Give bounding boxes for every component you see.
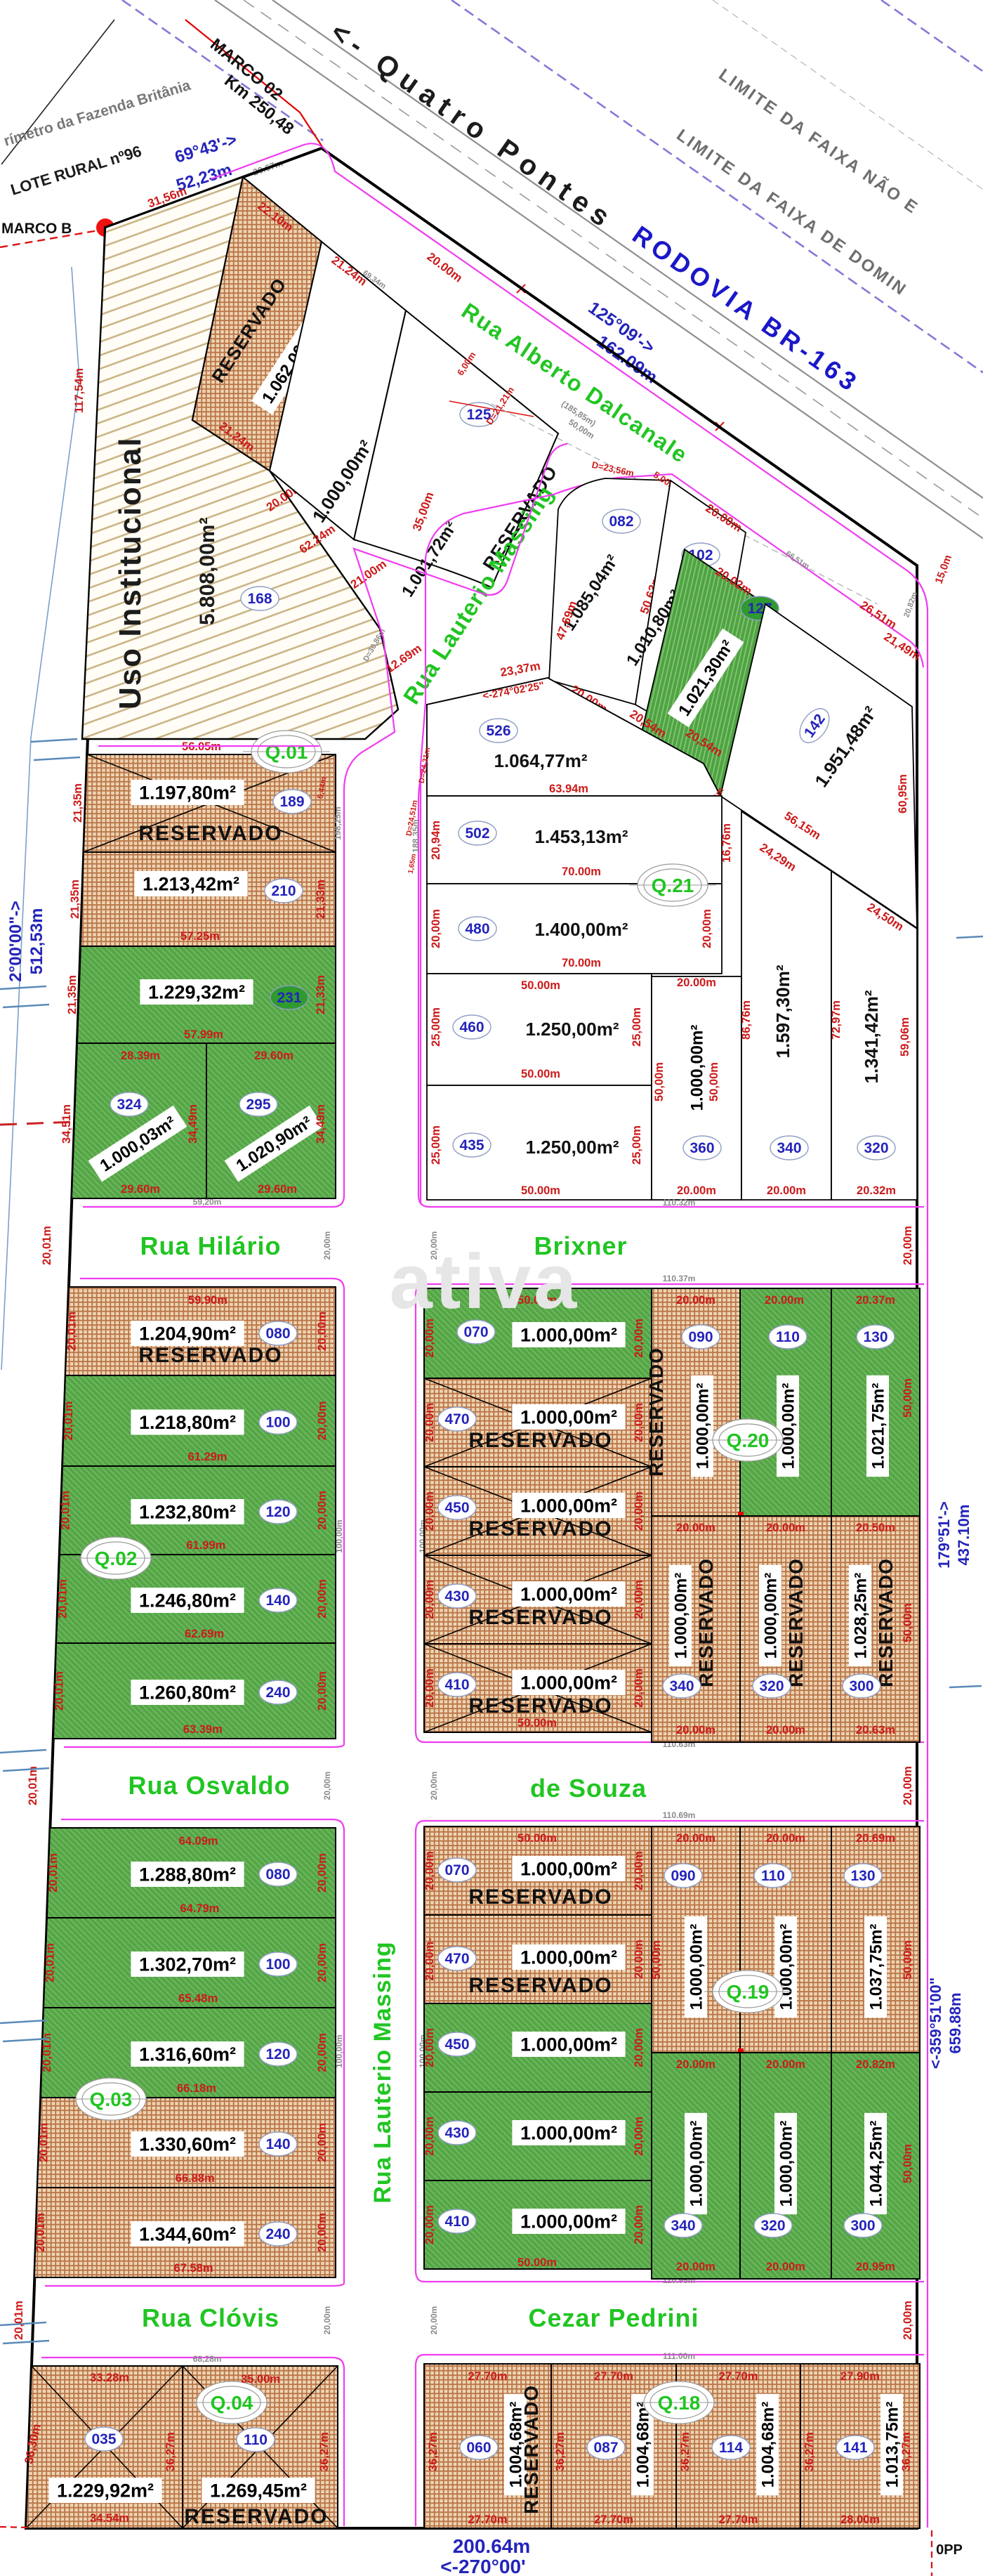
svg-text:1.000,00m²: 1.000,00m²: [761, 1573, 780, 1659]
svg-text:1.000,00m²: 1.000,00m²: [687, 1025, 706, 1111]
svg-text:33.28m: 33.28m: [90, 2372, 129, 2384]
svg-text:110.69m: 110.69m: [663, 1810, 696, 1820]
svg-text:512,53m: 512,53m: [27, 908, 46, 975]
svg-text:110: 110: [244, 2432, 268, 2448]
svg-text:1.269,45m²: 1.269,45m²: [210, 2480, 307, 2501]
svg-text:Rua Hilário: Rua Hilário: [140, 1231, 281, 1260]
svg-text:324: 324: [117, 1097, 141, 1113]
svg-text:140: 140: [265, 2136, 290, 2152]
svg-text:1.000,00m²: 1.000,00m²: [520, 1858, 617, 1879]
svg-text:188,35m: 188,35m: [411, 819, 421, 852]
svg-text:141: 141: [843, 2440, 867, 2456]
svg-text:20.32m: 20.32m: [857, 1184, 896, 1197]
svg-text:120: 120: [265, 2046, 290, 2062]
svg-text:20.00m: 20.00m: [766, 1832, 805, 1845]
svg-text:080: 080: [265, 1326, 290, 1342]
svg-text:070: 070: [444, 1862, 469, 1878]
svg-text:20,01m: 20,01m: [65, 1312, 78, 1351]
svg-text:5.808,00m²: 5.808,00m²: [196, 518, 219, 625]
svg-text:50,00m: 50,00m: [902, 2144, 914, 2183]
svg-text:20.00m: 20.00m: [766, 1724, 805, 1737]
svg-text:1.453,13m²: 1.453,13m²: [535, 826, 628, 847]
svg-text:20,00m: 20,00m: [430, 909, 442, 948]
svg-text:<-270°00': <-270°00': [440, 2556, 525, 2576]
svg-text:1.246,80m²: 1.246,80m²: [139, 1590, 236, 1611]
svg-text:36,27m: 36,27m: [900, 2432, 913, 2471]
svg-text:20.00m: 20.00m: [676, 2261, 715, 2273]
svg-text:100,00m: 100,00m: [334, 1519, 344, 1552]
svg-text:20.00m: 20.00m: [766, 2261, 805, 2273]
svg-text:21,33m: 21,33m: [315, 880, 327, 919]
svg-text:1.000,00m²: 1.000,00m²: [671, 1573, 690, 1659]
svg-text:140: 140: [265, 1593, 290, 1609]
svg-text:470: 470: [444, 1951, 469, 1967]
svg-text:70.00m: 70.00m: [562, 957, 601, 969]
svg-text:1.000,00m²: 1.000,00m²: [687, 2121, 706, 2207]
svg-text:20,01m: 20,01m: [27, 1766, 39, 1805]
svg-text:035: 035: [91, 2431, 116, 2447]
svg-text:435: 435: [459, 1137, 484, 1153]
svg-text:20.37m: 20.37m: [856, 1294, 895, 1307]
svg-text:50.00m: 50.00m: [521, 1184, 560, 1197]
svg-text:60,95m: 60,95m: [897, 774, 909, 813]
svg-text:59,06m: 59,06m: [899, 1017, 911, 1057]
svg-text:20,01m: 20,01m: [62, 1401, 75, 1441]
svg-text:210: 210: [271, 883, 296, 899]
svg-text:50,00m: 50,00m: [650, 1940, 663, 1980]
svg-text:1.344,60m²: 1.344,60m²: [139, 2223, 236, 2244]
svg-text:300: 300: [850, 2218, 875, 2234]
svg-text:20,00m: 20,00m: [633, 1403, 645, 1442]
svg-text:100: 100: [265, 1956, 290, 1973]
svg-text:1.000,00m²: 1.000,00m²: [520, 2122, 617, 2143]
svg-text:340: 340: [671, 2218, 695, 2234]
svg-text:1.044,25m²: 1.044,25m²: [866, 2121, 885, 2207]
svg-text:1.021,75m²: 1.021,75m²: [869, 1383, 888, 1470]
svg-text:1.341,42m²: 1.341,42m²: [861, 990, 882, 1083]
svg-text:2°00'00"->: 2°00'00"->: [6, 901, 25, 981]
svg-text:RESERVADO: RESERVADO: [138, 822, 282, 845]
svg-text:1.028,25m²: 1.028,25m²: [851, 1573, 870, 1659]
svg-text:59,20m: 59,20m: [193, 1197, 222, 1207]
svg-text:72,97m: 72,97m: [830, 1000, 843, 1040]
svg-text:1.000,00m²: 1.000,00m²: [520, 1672, 617, 1693]
svg-text:Uso Institucional: Uso Institucional: [113, 437, 147, 710]
svg-text:20,00m: 20,00m: [423, 2205, 436, 2244]
svg-text:21,35m: 21,35m: [66, 975, 79, 1014]
svg-text:1.000,00m²: 1.000,00m²: [520, 1947, 617, 1968]
svg-text:1.232,80m²: 1.232,80m²: [139, 1501, 236, 1522]
svg-text:27.70m: 27.70m: [468, 2513, 508, 2526]
svg-text:1.250,00m²: 1.250,00m²: [526, 1019, 619, 1040]
svg-text:36,27m: 36,27m: [554, 2432, 567, 2471]
svg-text:0PP: 0PP: [936, 2542, 963, 2558]
svg-text:1.229,92m²: 1.229,92m²: [57, 2480, 154, 2501]
svg-text:437.10m: 437.10m: [955, 1505, 972, 1566]
svg-text:198,25m: 198,25m: [333, 806, 343, 839]
svg-text:20.00m: 20.00m: [677, 976, 716, 989]
svg-text:20.00m: 20.00m: [766, 2058, 805, 2071]
svg-text:Rua Clóvis: Rua Clóvis: [142, 2303, 279, 2332]
svg-text:25,00m: 25,00m: [631, 1125, 643, 1165]
svg-text:20.00m: 20.00m: [676, 2058, 715, 2071]
svg-text:Q.01: Q.01: [265, 741, 308, 763]
svg-text:1.000,00m²: 1.000,00m²: [520, 1406, 617, 1427]
svg-text:1.316,60m²: 1.316,60m²: [139, 2044, 236, 2065]
svg-text:20,01m: 20,01m: [34, 2213, 47, 2252]
svg-text:1.213,42m²: 1.213,42m²: [143, 873, 239, 894]
svg-text:50.00m: 50.00m: [517, 2256, 557, 2269]
svg-text:RESERVADO: RESERVADO: [468, 1974, 612, 1997]
svg-text:25,00m: 25,00m: [631, 1007, 643, 1047]
svg-text:50,00m: 50,00m: [708, 1062, 720, 1101]
svg-text:66.88m: 66.88m: [176, 2172, 215, 2185]
svg-text:659.88m: 659.88m: [946, 1993, 964, 2054]
svg-text:1.204,90m²: 1.204,90m²: [139, 1323, 236, 1344]
svg-text:189: 189: [279, 794, 304, 810]
svg-text:1.197,80m²: 1.197,80m²: [139, 782, 236, 803]
svg-text:50.00m: 50.00m: [517, 1832, 557, 1845]
svg-text:130: 130: [850, 1868, 875, 1884]
svg-text:29.60m: 29.60m: [254, 1050, 293, 1062]
svg-text:34,49m: 34,49m: [187, 1104, 199, 1144]
svg-text:34,51m: 34,51m: [60, 1104, 73, 1144]
svg-text:Q.19: Q.19: [727, 1981, 770, 2003]
svg-text:Q.18: Q.18: [658, 2392, 701, 2414]
svg-text:240: 240: [265, 2226, 290, 2242]
svg-text:20,01m: 20,01m: [60, 1491, 72, 1530]
svg-text:RESERVADO: RESERVADO: [468, 1606, 612, 1629]
svg-text:Rua Lauterio Massing: Rua Lauterio Massing: [369, 1941, 396, 2203]
svg-text:20,01m: 20,01m: [47, 1853, 60, 1892]
svg-text:RESERVADO: RESERVADO: [468, 1429, 612, 1452]
svg-text:450: 450: [444, 2036, 469, 2053]
svg-text:34,49m: 34,49m: [315, 1104, 327, 1144]
svg-text:480: 480: [465, 921, 489, 937]
svg-text:1.013,75m²: 1.013,75m²: [883, 2402, 902, 2488]
svg-text:20,00m: 20,00m: [902, 2301, 914, 2340]
svg-text:231: 231: [277, 990, 301, 1006]
svg-text:20,00m: 20,00m: [316, 2213, 329, 2252]
svg-text:20,00m: 20,00m: [316, 1671, 329, 1711]
svg-text:RESERVADO: RESERVADO: [875, 1558, 897, 1687]
svg-text:320: 320: [759, 1678, 784, 1694]
svg-text:61.29m: 61.29m: [188, 1451, 227, 1463]
svg-text:RESERVADO: RESERVADO: [468, 1694, 612, 1718]
svg-text:20.00m: 20.00m: [676, 1832, 715, 1845]
svg-text:20,00m: 20,00m: [701, 909, 713, 948]
svg-text:20,00m: 20,00m: [633, 2117, 645, 2156]
svg-text:27.70m: 27.70m: [594, 2370, 633, 2383]
svg-text:20,00m: 20,00m: [429, 2306, 439, 2335]
svg-text:1.000,00m²: 1.000,00m²: [520, 1495, 617, 1516]
svg-text:1.064,77m²: 1.064,77m²: [494, 750, 588, 771]
svg-text:20,00m: 20,00m: [633, 1319, 645, 1358]
svg-text:de Souza: de Souza: [530, 1774, 647, 1803]
svg-text:RESERVADO: RESERVADO: [645, 1347, 667, 1477]
svg-text:1.000,00m²: 1.000,00m²: [520, 1324, 617, 1345]
svg-text:526: 526: [486, 723, 510, 739]
svg-text:20,00m: 20,00m: [316, 1943, 329, 1982]
svg-text:1.260,80m²: 1.260,80m²: [139, 1682, 236, 1703]
svg-text:470: 470: [444, 1411, 469, 1427]
svg-text:20,00m: 20,00m: [423, 1668, 436, 1708]
svg-text:Rua Osvaldo: Rua Osvaldo: [128, 1771, 290, 1800]
svg-text:Q.03: Q.03: [90, 2088, 133, 2110]
svg-text:1.330,60m²: 1.330,60m²: [139, 2133, 236, 2155]
svg-text:090: 090: [688, 1329, 713, 1345]
svg-text:1.037,75m²: 1.037,75m²: [866, 1924, 885, 2011]
svg-text:20.00m: 20.00m: [676, 1724, 715, 1737]
svg-text:20,00m: 20,00m: [316, 1312, 329, 1351]
svg-text:Q.04: Q.04: [211, 2392, 253, 2414]
svg-text:68,28m: 68,28m: [193, 2354, 222, 2364]
svg-text:1.288,80m²: 1.288,80m²: [139, 1864, 236, 1885]
svg-text:Q.20: Q.20: [727, 1430, 770, 1451]
svg-text:20,00m: 20,00m: [316, 1491, 329, 1530]
svg-text:50.00m: 50.00m: [521, 1068, 560, 1080]
svg-text:34.54m: 34.54m: [90, 2512, 129, 2525]
svg-text:090: 090: [671, 1868, 695, 1884]
svg-text:36,27m: 36,27m: [803, 2432, 816, 2471]
svg-text:430: 430: [444, 2125, 469, 2141]
svg-text:64.79m: 64.79m: [180, 1902, 219, 1915]
svg-text:RESERVADO: RESERVADO: [520, 2385, 542, 2514]
svg-text:1.302,70m²: 1.302,70m²: [139, 1954, 236, 1975]
svg-text:ativa: ativa: [390, 1238, 580, 1325]
svg-text:1.250,00m²: 1.250,00m²: [526, 1137, 619, 1158]
svg-text:20.00m: 20.00m: [676, 1294, 715, 1307]
svg-text:20,00m: 20,00m: [316, 2123, 329, 2162]
svg-text:100: 100: [265, 1415, 290, 1431]
svg-text:082: 082: [609, 514, 633, 530]
svg-text:RESERVADO: RESERVADO: [468, 1517, 612, 1541]
svg-text:111.00m: 111.00m: [663, 2351, 695, 2361]
svg-text:20.00m: 20.00m: [767, 1184, 806, 1197]
svg-text:20,00m: 20,00m: [633, 1940, 645, 1979]
svg-text:1.000,00m²: 1.000,00m²: [777, 2121, 796, 2207]
svg-text:20,01m: 20,01m: [13, 2301, 25, 2340]
svg-text:20,00m: 20,00m: [902, 1226, 914, 1265]
svg-text:<-359°51'00": <-359°51'00": [927, 1977, 944, 2069]
svg-text:36,27m: 36,27m: [679, 2432, 692, 2471]
svg-text:27.70m: 27.70m: [594, 2513, 633, 2526]
svg-text:50,00m: 50,00m: [653, 1062, 666, 1101]
svg-text:RESERVADO: RESERVADO: [785, 1558, 807, 1687]
svg-text:20,00m: 20,00m: [633, 1580, 645, 1619]
svg-text:20,00m: 20,00m: [316, 1401, 329, 1441]
svg-text:120: 120: [265, 1504, 290, 1520]
svg-text:20,00m: 20,00m: [423, 2117, 436, 2156]
svg-text:20,01m: 20,01m: [53, 1671, 66, 1711]
svg-text:20.82m: 20.82m: [856, 2058, 895, 2071]
svg-text:114: 114: [719, 2440, 743, 2456]
svg-text:29.60m: 29.60m: [258, 1183, 297, 1196]
svg-text:MARCO B: MARCO B: [1, 221, 72, 237]
svg-text:410: 410: [444, 2214, 469, 2230]
svg-text:20,00m: 20,00m: [633, 1491, 645, 1531]
svg-text:20,00m: 20,00m: [316, 2033, 329, 2072]
svg-text:20,00m: 20,00m: [902, 1766, 914, 1805]
svg-text:1.000,00m²: 1.000,00m²: [693, 1383, 712, 1470]
svg-text:35.00m: 35.00m: [241, 2373, 280, 2386]
svg-text:65.48m: 65.48m: [178, 1992, 218, 2005]
svg-text:320: 320: [864, 1140, 888, 1156]
svg-text:Cezar Pedrini: Cezar Pedrini: [528, 2303, 699, 2332]
svg-text:50.00m: 50.00m: [521, 979, 560, 992]
svg-text:27.90m: 27.90m: [840, 2370, 880, 2383]
svg-text:20,00m: 20,00m: [322, 1772, 332, 1800]
svg-text:20.00m: 20.00m: [766, 1522, 805, 1534]
svg-text:110: 110: [776, 1329, 800, 1345]
svg-text:295: 295: [246, 1097, 270, 1113]
svg-text:1.229,32m²: 1.229,32m²: [148, 981, 245, 1002]
svg-text:25,00m: 25,00m: [430, 1125, 442, 1165]
svg-text:57.99m: 57.99m: [184, 1028, 223, 1041]
svg-text:450: 450: [444, 1500, 469, 1516]
svg-text:27.70m: 27.70m: [719, 2513, 758, 2526]
svg-text:340: 340: [669, 1678, 694, 1694]
svg-text:25,00m: 25,00m: [430, 1007, 442, 1047]
svg-text:20,00m: 20,00m: [423, 2028, 436, 2067]
svg-text:110.32m: 110.32m: [663, 1198, 696, 1208]
svg-text:20,00m: 20,00m: [633, 2205, 645, 2244]
svg-text:70.00m: 70.00m: [562, 865, 601, 878]
svg-text:20.69m: 20.69m: [856, 1832, 895, 1845]
svg-text:20,00m: 20,00m: [423, 1403, 436, 1442]
svg-text:240: 240: [265, 1685, 290, 1701]
svg-text:200.64m: 200.64m: [453, 2535, 531, 2557]
svg-text:1.400,00m²: 1.400,00m²: [535, 919, 628, 940]
svg-text:320: 320: [760, 2218, 785, 2234]
svg-text:RESERVADO: RESERVADO: [468, 1885, 612, 1909]
svg-text:21,35m: 21,35m: [69, 880, 81, 919]
svg-text:20,00m: 20,00m: [322, 1231, 332, 1260]
svg-text:86,76m: 86,76m: [740, 1000, 753, 1040]
svg-text:67.58m: 67.58m: [174, 2262, 213, 2275]
svg-text:20,00m: 20,00m: [423, 1580, 436, 1619]
svg-text:20,01m: 20,01m: [37, 2123, 50, 2162]
svg-text:Q.02: Q.02: [95, 1548, 138, 1569]
svg-text:117,54m: 117,54m: [73, 368, 86, 413]
svg-text:20,00m: 20,00m: [633, 1851, 645, 1890]
svg-text:50,00m: 50,00m: [902, 1940, 914, 1980]
svg-text:360: 360: [690, 1140, 714, 1156]
svg-text:57.25m: 57.25m: [180, 930, 220, 943]
svg-text:36,27m: 36,27m: [318, 2432, 331, 2471]
svg-text:20,94m: 20,94m: [430, 820, 442, 860]
svg-text:1.218,80m²: 1.218,80m²: [139, 1412, 236, 1433]
svg-text:36,27m: 36,27m: [427, 2432, 440, 2471]
svg-text:63.94m: 63.94m: [549, 783, 588, 795]
svg-text:110: 110: [761, 1868, 785, 1884]
svg-text:20,00m: 20,00m: [423, 1851, 436, 1890]
svg-text:27.70m: 27.70m: [468, 2370, 508, 2383]
svg-text:20.00m: 20.00m: [677, 1184, 716, 1197]
svg-text:110.37m: 110.37m: [663, 1274, 696, 1283]
svg-text:060: 060: [466, 2440, 491, 2456]
svg-text:1.004,68m²: 1.004,68m²: [758, 2402, 777, 2488]
svg-text:20,01m: 20,01m: [41, 1226, 53, 1265]
svg-text:Q.21: Q.21: [652, 875, 694, 896]
svg-text:20,01m: 20,01m: [44, 1943, 56, 1982]
svg-text:20.95m: 20.95m: [856, 2261, 895, 2273]
svg-text:36,27m: 36,27m: [164, 2432, 177, 2471]
svg-text:27.70m: 27.70m: [719, 2370, 758, 2383]
svg-text:66.18m: 66.18m: [177, 2082, 216, 2095]
svg-text:50.00m: 50.00m: [517, 1717, 557, 1730]
svg-text:1.000,00m²: 1.000,00m²: [520, 1583, 617, 1604]
svg-text:50,00m: 50,00m: [902, 1603, 914, 1642]
svg-text:20,01m: 20,01m: [56, 1579, 69, 1619]
svg-text:62.69m: 62.69m: [185, 1628, 224, 1640]
svg-text:460: 460: [459, 1019, 484, 1035]
svg-text:20.63m: 20.63m: [856, 1724, 895, 1737]
svg-text:502: 502: [465, 825, 489, 842]
svg-text:16,76m: 16,76m: [720, 823, 733, 863]
svg-text:168: 168: [247, 591, 272, 607]
svg-text:1.000,00m²: 1.000,00m²: [687, 1924, 706, 2011]
svg-text:RESERVADO: RESERVADO: [138, 1344, 282, 1367]
svg-text:28.39m: 28.39m: [121, 1050, 160, 1062]
svg-text:20.50m: 20.50m: [856, 1522, 895, 1534]
svg-text:20,00m: 20,00m: [322, 2306, 332, 2335]
svg-text:410: 410: [444, 1677, 469, 1693]
svg-text:340: 340: [777, 1140, 801, 1156]
svg-text:080: 080: [265, 1866, 290, 1883]
svg-text:20.00m: 20.00m: [765, 1294, 804, 1307]
svg-text:300: 300: [849, 1678, 873, 1694]
svg-text:29.60m: 29.60m: [121, 1183, 160, 1196]
svg-text:RESERVADO: RESERVADO: [184, 2505, 328, 2528]
svg-text:20,00m: 20,00m: [429, 1772, 439, 1800]
svg-text:430: 430: [444, 1588, 469, 1604]
svg-text:20,00m-: 20,00m-: [423, 1937, 436, 1980]
svg-text:28.00m: 28.00m: [840, 2513, 880, 2526]
svg-text:63.39m: 63.39m: [183, 1723, 223, 1736]
svg-text:20.00m: 20.00m: [676, 1522, 715, 1534]
svg-text:RESERVADO: RESERVADO: [695, 1558, 717, 1687]
svg-text:20,00m: 20,00m: [423, 1491, 436, 1531]
svg-text:20,00m: 20,00m: [633, 2028, 645, 2067]
svg-text:59.90m: 59.90m: [188, 1294, 227, 1307]
svg-text:100,00m: 100,00m: [334, 2034, 344, 2067]
svg-text:21,35m: 21,35m: [72, 783, 84, 823]
svg-text:1.000,00m²: 1.000,00m²: [520, 2034, 617, 2055]
svg-text:1.000,00m²: 1.000,00m²: [779, 1383, 798, 1470]
svg-text:087: 087: [593, 2440, 618, 2456]
svg-text:179°51'->: 179°51'->: [935, 1501, 953, 1568]
svg-text:20,00m: 20,00m: [633, 1668, 645, 1708]
svg-text:50,00m: 50,00m: [902, 1378, 914, 1418]
svg-text:64.09m: 64.09m: [179, 1835, 218, 1848]
svg-text:1.597,30m²: 1.597,30m²: [772, 965, 793, 1058]
svg-text:61.99m: 61.99m: [186, 1539, 225, 1552]
svg-text:20,00m: 20,00m: [316, 1579, 329, 1619]
svg-text:130: 130: [863, 1329, 888, 1345]
svg-text:21,33m: 21,33m: [315, 975, 327, 1014]
svg-text:070: 070: [463, 1324, 488, 1340]
svg-text:1.000,00m²: 1.000,00m²: [520, 2211, 617, 2232]
svg-text:20,00m: 20,00m: [316, 1853, 329, 1892]
